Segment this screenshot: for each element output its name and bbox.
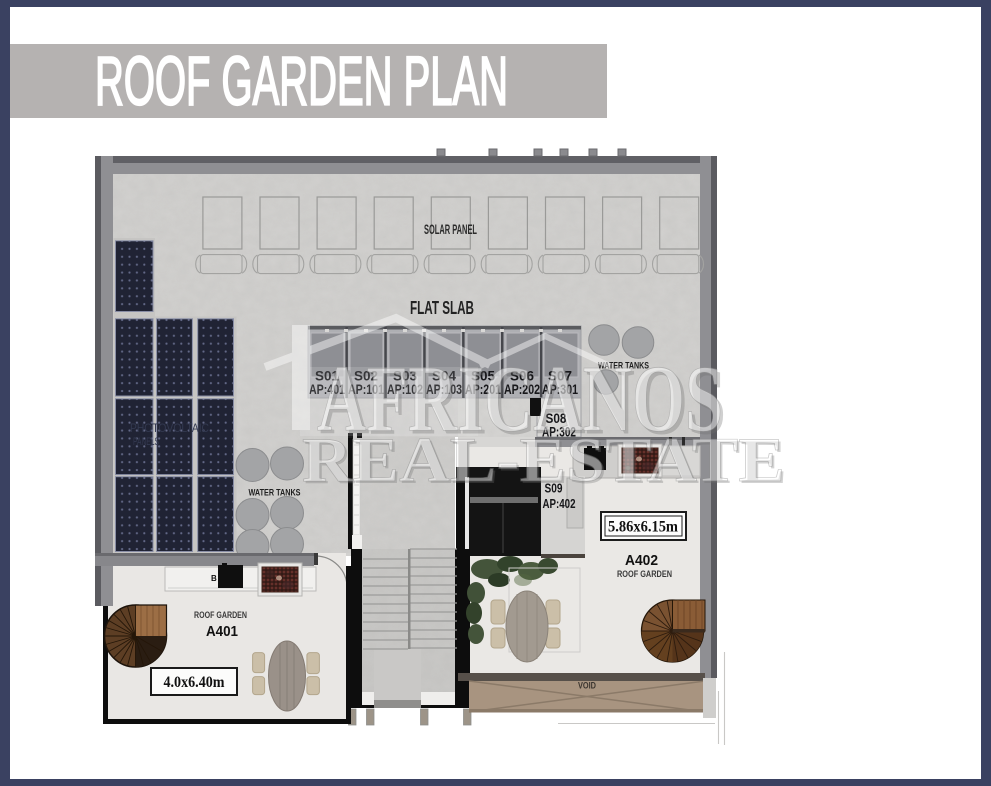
svg-text:SOLAR PANEL: SOLAR PANEL — [424, 222, 477, 237]
svg-text:B: B — [211, 574, 217, 583]
svg-text:ROOF GARDEN: ROOF GARDEN — [617, 569, 672, 580]
svg-text:4.0x6.40m: 4.0x6.40m — [164, 674, 226, 691]
svg-text:PHOTOVOLTAIC: PHOTOVOLTAIC — [130, 421, 209, 435]
svg-text:A401: A401 — [206, 623, 238, 640]
svg-text:A402: A402 — [625, 552, 658, 569]
svg-text:PANELS: PANELS — [133, 436, 159, 448]
svg-text:FLAT SLAB: FLAT SLAB — [410, 298, 474, 318]
svg-text:ROOF GARDEN PLAN: ROOF GARDEN PLAN — [95, 43, 508, 120]
svg-text:5.86x6.15m: 5.86x6.15m — [608, 519, 679, 536]
svg-text:REAL-ESTATE: REAL-ESTATE — [302, 424, 785, 495]
svg-text:AP:402: AP:402 — [543, 496, 576, 511]
svg-text:ROOF GARDEN: ROOF GARDEN — [194, 610, 247, 621]
svg-text:VOID: VOID — [578, 681, 596, 691]
svg-text:WATER TANKS: WATER TANKS — [249, 488, 301, 499]
